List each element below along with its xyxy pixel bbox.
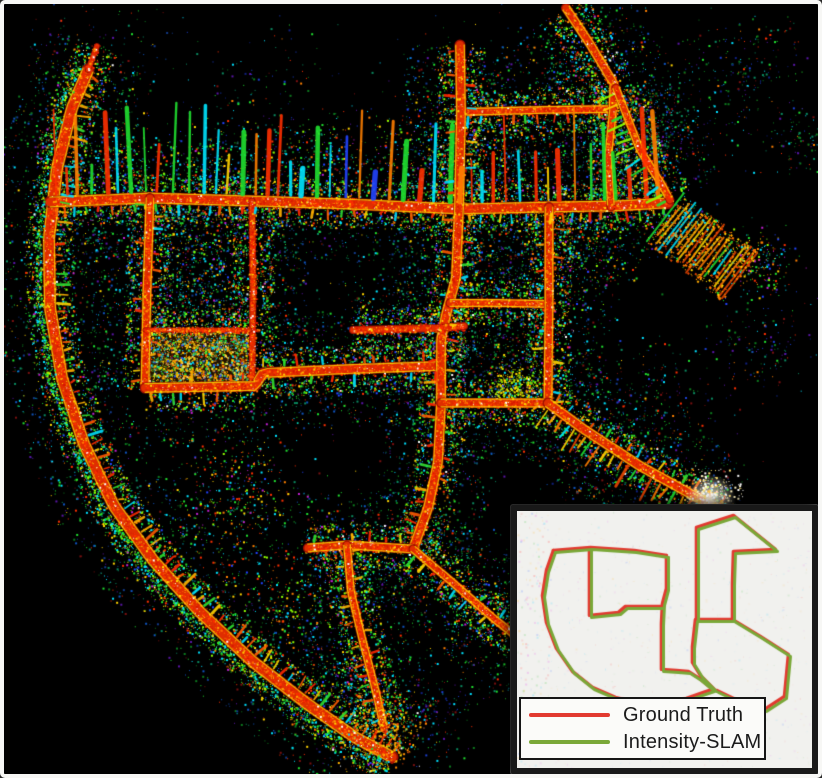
legend-row-ground-truth: Ground Truth [529,704,764,726]
intensity-slam-line-swatch [529,740,610,744]
figure-frame: Ground Truth Intensity-SLAM [0,0,822,778]
legend-row-intensity-slam: Intensity-SLAM [529,731,764,753]
trajectory-legend: Ground Truth Intensity-SLAM [519,697,766,760]
ground-truth-line-swatch [529,713,610,717]
ground-truth-label: Ground Truth [623,704,743,726]
trajectory-inset: Ground Truth Intensity-SLAM [511,505,818,774]
intensity-slam-label: Intensity-SLAM [623,731,761,753]
